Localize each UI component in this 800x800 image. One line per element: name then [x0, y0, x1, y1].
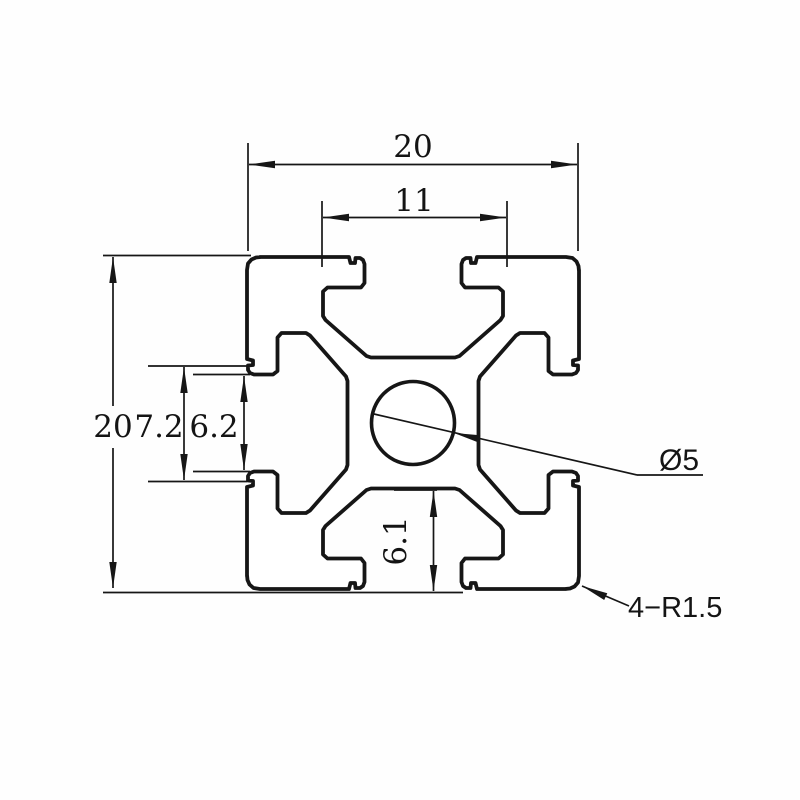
dim-groove-width-label: 7.2 [134, 409, 183, 445]
arrowhead [551, 161, 577, 168]
dim-center-hole-label: Ø5 [659, 444, 699, 477]
arrowhead [109, 562, 116, 588]
dim-slot-inner-width-label: 11 [394, 183, 433, 219]
dim-slot-depth-label: 6.1 [378, 516, 414, 565]
arrowhead [430, 491, 437, 517]
dim-overall-width-label: 20 [393, 129, 432, 165]
arrowhead [240, 376, 247, 402]
arrowhead [180, 454, 187, 480]
arrowhead [582, 586, 607, 600]
arrowhead [480, 214, 506, 221]
arrowhead [109, 257, 116, 283]
arrowhead [180, 367, 187, 393]
dim-overall-height-label: 20 [93, 409, 132, 445]
drawing-canvas: 20 11 20 7.2 6.2 6.1 Ø5 4−R1.5 [0, 0, 800, 800]
arrowhead [249, 161, 275, 168]
dim-slot-opening-label: 6.2 [189, 409, 238, 445]
arrowhead [323, 214, 349, 221]
dim-corner-radius-label: 4−R1.5 [628, 592, 722, 624]
arrowhead [240, 444, 247, 470]
arrowhead [430, 565, 437, 591]
extrusion-profile-drawing: 20 11 20 7.2 6.2 6.1 Ø5 4−R1.5 [0, 0, 800, 800]
